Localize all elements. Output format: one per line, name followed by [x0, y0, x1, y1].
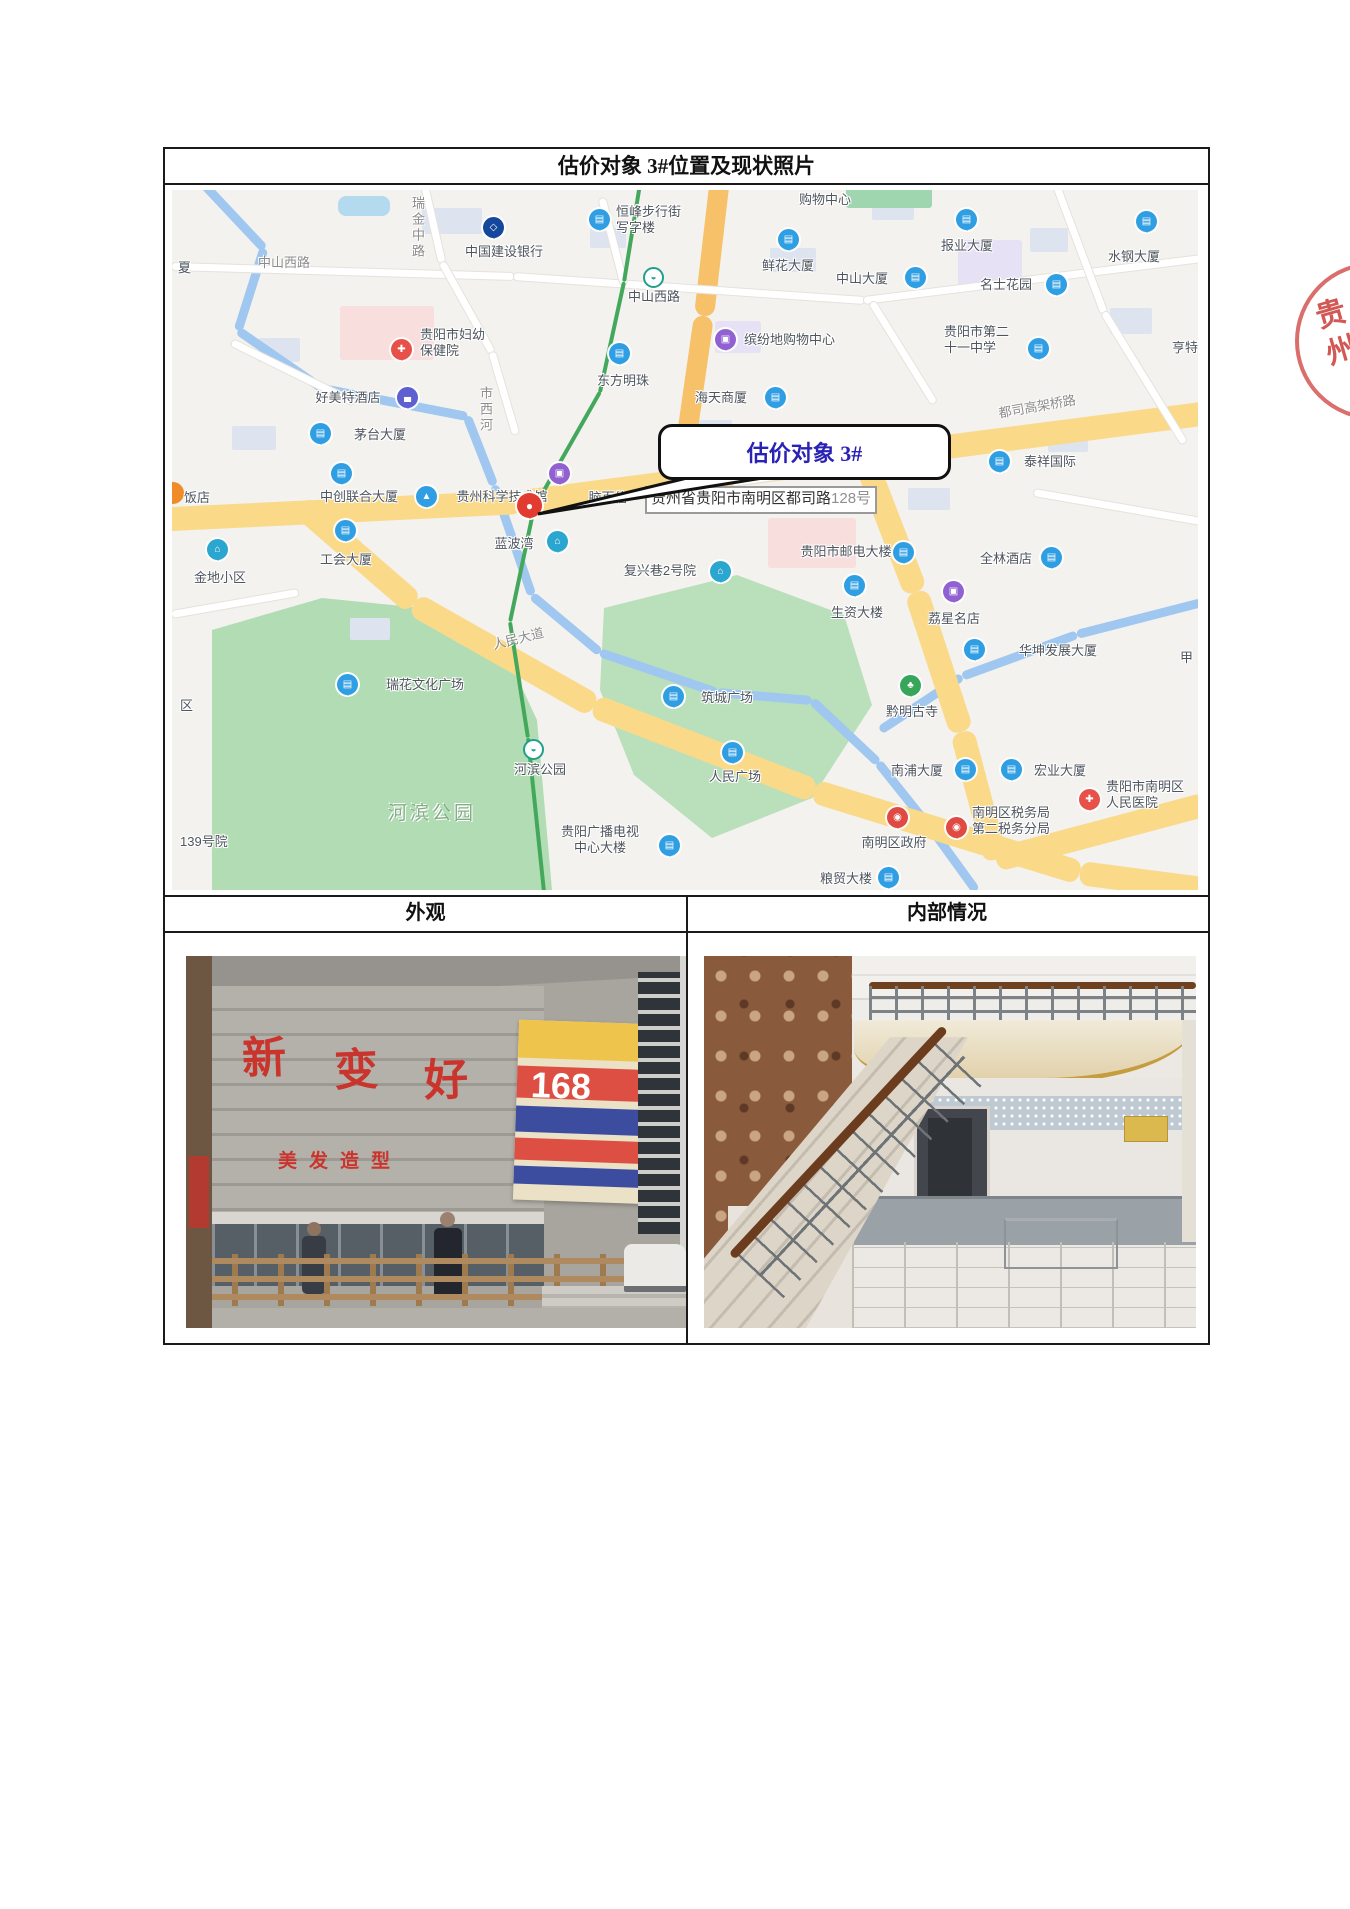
- staircase: [704, 1012, 1004, 1328]
- callout-tail: [172, 190, 1198, 890]
- interior-header: 内部情况: [688, 897, 1206, 929]
- page-title: 估价对象 3#位置及现状照片: [165, 150, 1208, 182]
- table-divider: [686, 895, 688, 1343]
- official-stamp-partial: 贵州: [1295, 262, 1350, 432]
- sign-band-red-2: [514, 1138, 657, 1165]
- yellow-wall-sign: [1124, 1116, 1168, 1142]
- shop-sign-char-1: 新: [241, 1021, 287, 1086]
- person-1-head: [307, 1222, 321, 1236]
- interior-photo: [704, 956, 1196, 1328]
- sign-number: 168: [530, 1064, 592, 1108]
- table-frame: [1004, 1218, 1118, 1269]
- white-car: [624, 1244, 686, 1292]
- pavement: [186, 1308, 686, 1328]
- storefront-ledge: [212, 1212, 544, 1224]
- sign-band-blue-2: [513, 1165, 656, 1188]
- shop-subtext: 美发造型: [278, 1146, 402, 1173]
- left-pillar: [186, 956, 212, 1328]
- left-red-banner: [189, 1156, 209, 1228]
- railing-bar-2: [186, 1276, 626, 1282]
- exterior-photo: 新 变 好 美发造型 168: [186, 956, 686, 1328]
- sign-band-blue-1: [515, 1106, 658, 1137]
- person-2-head: [440, 1212, 455, 1227]
- subject-callout: 估价对象 3#: [658, 424, 951, 480]
- shop-sign-char-2: 变: [333, 1033, 379, 1098]
- exterior-header: 外观: [165, 897, 686, 929]
- lattice-structure: [638, 972, 682, 1234]
- report-page: 估价对象 3#位置及现状照片 ▤恒峰步行街写字楼购物中心◇中国建设银行▤鲜花大厦…: [0, 0, 1350, 1909]
- table-line: [163, 183, 1210, 185]
- shop-sign-char-3: 好: [423, 1043, 469, 1108]
- location-map: ▤恒峰步行街写字楼购物中心◇中国建设银行▤鲜花大厦▤中山大厦▤报业大厦▤水钢大厦…: [172, 190, 1198, 890]
- railing-bar-1: [186, 1258, 626, 1264]
- right-column: [1182, 1020, 1196, 1242]
